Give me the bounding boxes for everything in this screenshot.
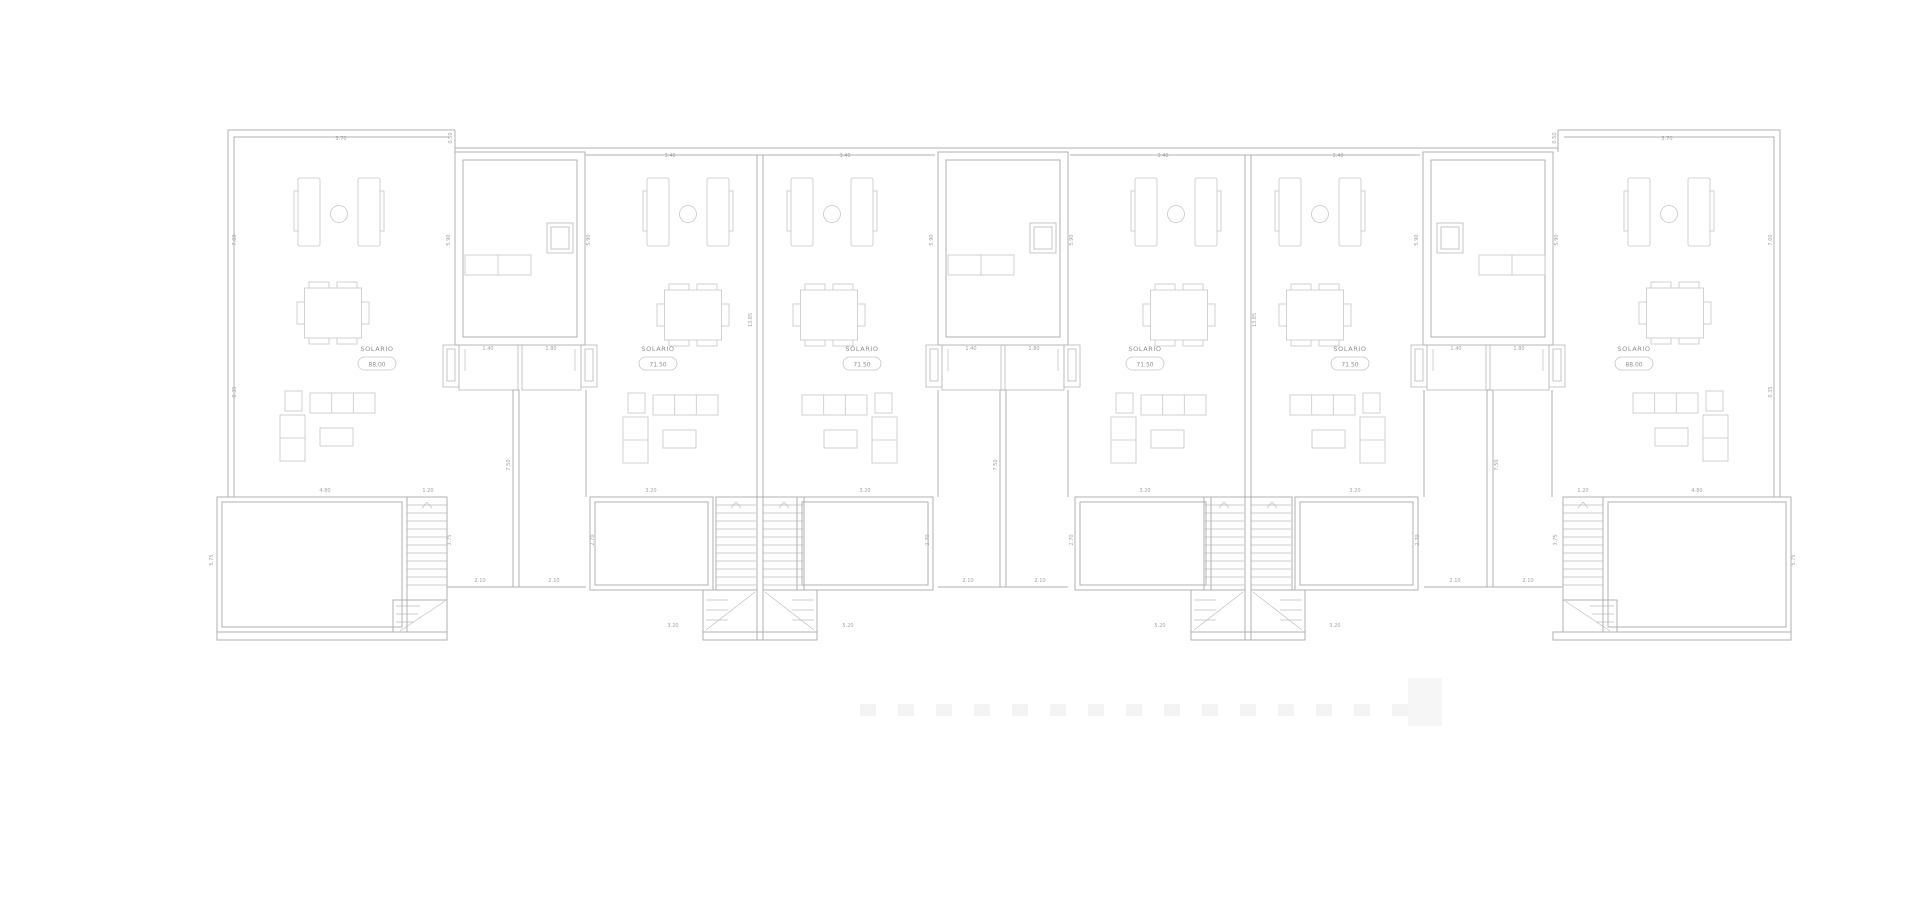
staircase-pair-de (1191, 497, 1305, 640)
dimension-label: 4.80 (1691, 488, 1702, 494)
dimension-label: 5.75 (209, 554, 215, 565)
solario-label: SOLARIO71.50 (1126, 345, 1164, 370)
solario-label: SOLARIO71.50 (843, 345, 881, 370)
dimension-label: 3.40 (839, 153, 850, 159)
dimension-label: 5.90 (586, 234, 592, 245)
solario-text: SOLARIO (641, 345, 674, 353)
dimension-label: 3.20 (1349, 488, 1360, 494)
dimension-label: 1.80 (545, 346, 556, 352)
dimension-label: 3.40 (1332, 153, 1343, 159)
dimension-label: 13.85 (748, 313, 754, 327)
dimension-label: 1.20 (422, 488, 433, 494)
staircase-pair-bc (703, 497, 817, 640)
dimension-label: 7.00 (1768, 234, 1774, 245)
solario-label: SOLARIO88.00 (1615, 345, 1653, 370)
sun-loungers (643, 178, 733, 246)
dimension-label: 2.10 (474, 578, 485, 584)
dining-set (297, 282, 369, 344)
dining-set (793, 284, 865, 346)
dimension-label: 1.20 (1577, 488, 1588, 494)
perimeter-walls (228, 130, 1780, 587)
staircase-unit-a (393, 497, 447, 632)
dimension-label: 2.10 (1034, 578, 1045, 584)
dimension-label: 0.50 (448, 132, 454, 143)
dimension-label: 1.40 (965, 346, 976, 352)
dimension-label: 2.10 (962, 578, 973, 584)
dimension-label: 0.35 (232, 386, 238, 397)
dimension-label: 5.90 (929, 234, 935, 245)
dimension-label: 4.80 (319, 488, 330, 494)
dimension-label: 5.90 (1554, 234, 1560, 245)
dimension-label: 3.70 (1661, 136, 1672, 142)
dimension-label: 5.90 (1414, 234, 1420, 245)
dimension-label: 3.20 (667, 623, 678, 629)
dimension-label: 2.70 (1069, 534, 1075, 545)
sun-loungers (1275, 178, 1365, 246)
solario-label: SOLARIO71.50 (639, 345, 677, 370)
dimension-label: 2.70 (925, 534, 931, 545)
furniture (280, 178, 1728, 463)
sofa-set (1633, 391, 1728, 461)
dimension-label: 1.80 (1028, 346, 1039, 352)
dimension-label: 3.20 (645, 488, 656, 494)
sofa-set (802, 393, 897, 463)
staircase-unit-f (1563, 497, 1617, 632)
sun-loungers (294, 178, 384, 246)
dimension-label: 3.20 (1139, 488, 1150, 494)
sofa-set (280, 391, 375, 461)
stair-tower-1 (443, 152, 597, 390)
dimension-label: 5.75 (1791, 554, 1797, 565)
dimension-label: 2.70 (1415, 534, 1421, 545)
dimension-label: 3.40 (1157, 153, 1168, 159)
dimension-label: 7.50 (506, 459, 512, 470)
lower-rooms (217, 497, 1791, 640)
dimension-label: 3.40 (664, 153, 675, 159)
solario-text: SOLARIO (1617, 345, 1650, 353)
dimension-label: 1.40 (1450, 346, 1461, 352)
dimension-label: 2.70 (590, 534, 596, 545)
solario-label: SOLARIO71.50 (1331, 345, 1369, 370)
dimension-label: 5.20 (842, 623, 853, 629)
dimension-label: 7.00 (232, 234, 238, 245)
dining-set (1143, 284, 1215, 346)
dining-set (657, 284, 729, 346)
dimension-label: 2.10 (1522, 578, 1533, 584)
dimension-label: 5.90 (446, 234, 452, 245)
stair-tower-3 (1411, 152, 1565, 390)
dimension-label: 3.20 (859, 488, 870, 494)
solario-text: SOLARIO (1128, 345, 1161, 353)
solario-text: 71.50 (1341, 362, 1358, 369)
sofa-set (1290, 393, 1385, 463)
solario-text: SOLARIO (1333, 345, 1366, 353)
watermark-artifact (1408, 678, 1442, 726)
solario-text: SOLARIO (360, 345, 393, 353)
solario-text: 71.50 (853, 362, 870, 369)
dimension-label: 1.40 (482, 346, 493, 352)
dimension-label: 13.85 (1252, 313, 1258, 327)
dimension-label: 0.35 (1768, 386, 1774, 397)
dimension-label: 7.50 (1494, 459, 1500, 470)
floor-plan-svg: SOLARIO88.00SOLARIO71.50SOLARIO71.50SOLA… (0, 0, 1920, 920)
sun-loungers (787, 178, 877, 246)
dimension-label: 3.70 (335, 136, 346, 142)
dimension-label: 2.10 (1449, 578, 1460, 584)
dining-set (1639, 282, 1711, 344)
dimension-label: 3.75 (447, 534, 453, 545)
dimension-label: 2.10 (548, 578, 559, 584)
sofa-set (623, 393, 718, 463)
floor-plan-page: SOLARIO88.00SOLARIO71.50SOLARIO71.50SOLA… (0, 0, 1920, 920)
dimension-label: 0.50 (1552, 132, 1558, 143)
solario-label: SOLARIO88.00 (358, 345, 396, 370)
stair-tower-2 (926, 152, 1080, 390)
sun-loungers (1131, 178, 1221, 246)
solario-text: 71.50 (649, 362, 666, 369)
dimension-label: 5.90 (1069, 234, 1075, 245)
dining-set (1279, 284, 1351, 346)
solario-text: 71.50 (1136, 362, 1153, 369)
dimension-label: 5.20 (1154, 623, 1165, 629)
dimension-label: 3.20 (1329, 623, 1340, 629)
solario-text: 88.00 (368, 362, 385, 369)
solario-text: 88.00 (1625, 362, 1642, 369)
sun-loungers (1624, 178, 1714, 246)
dimension-label: 3.75 (1553, 534, 1559, 545)
solario-text: SOLARIO (845, 345, 878, 353)
sofa-set (1111, 393, 1206, 463)
watermark-artifact (860, 704, 1440, 716)
dimension-label: 7.50 (993, 459, 999, 470)
dimension-label: 1.80 (1513, 346, 1524, 352)
